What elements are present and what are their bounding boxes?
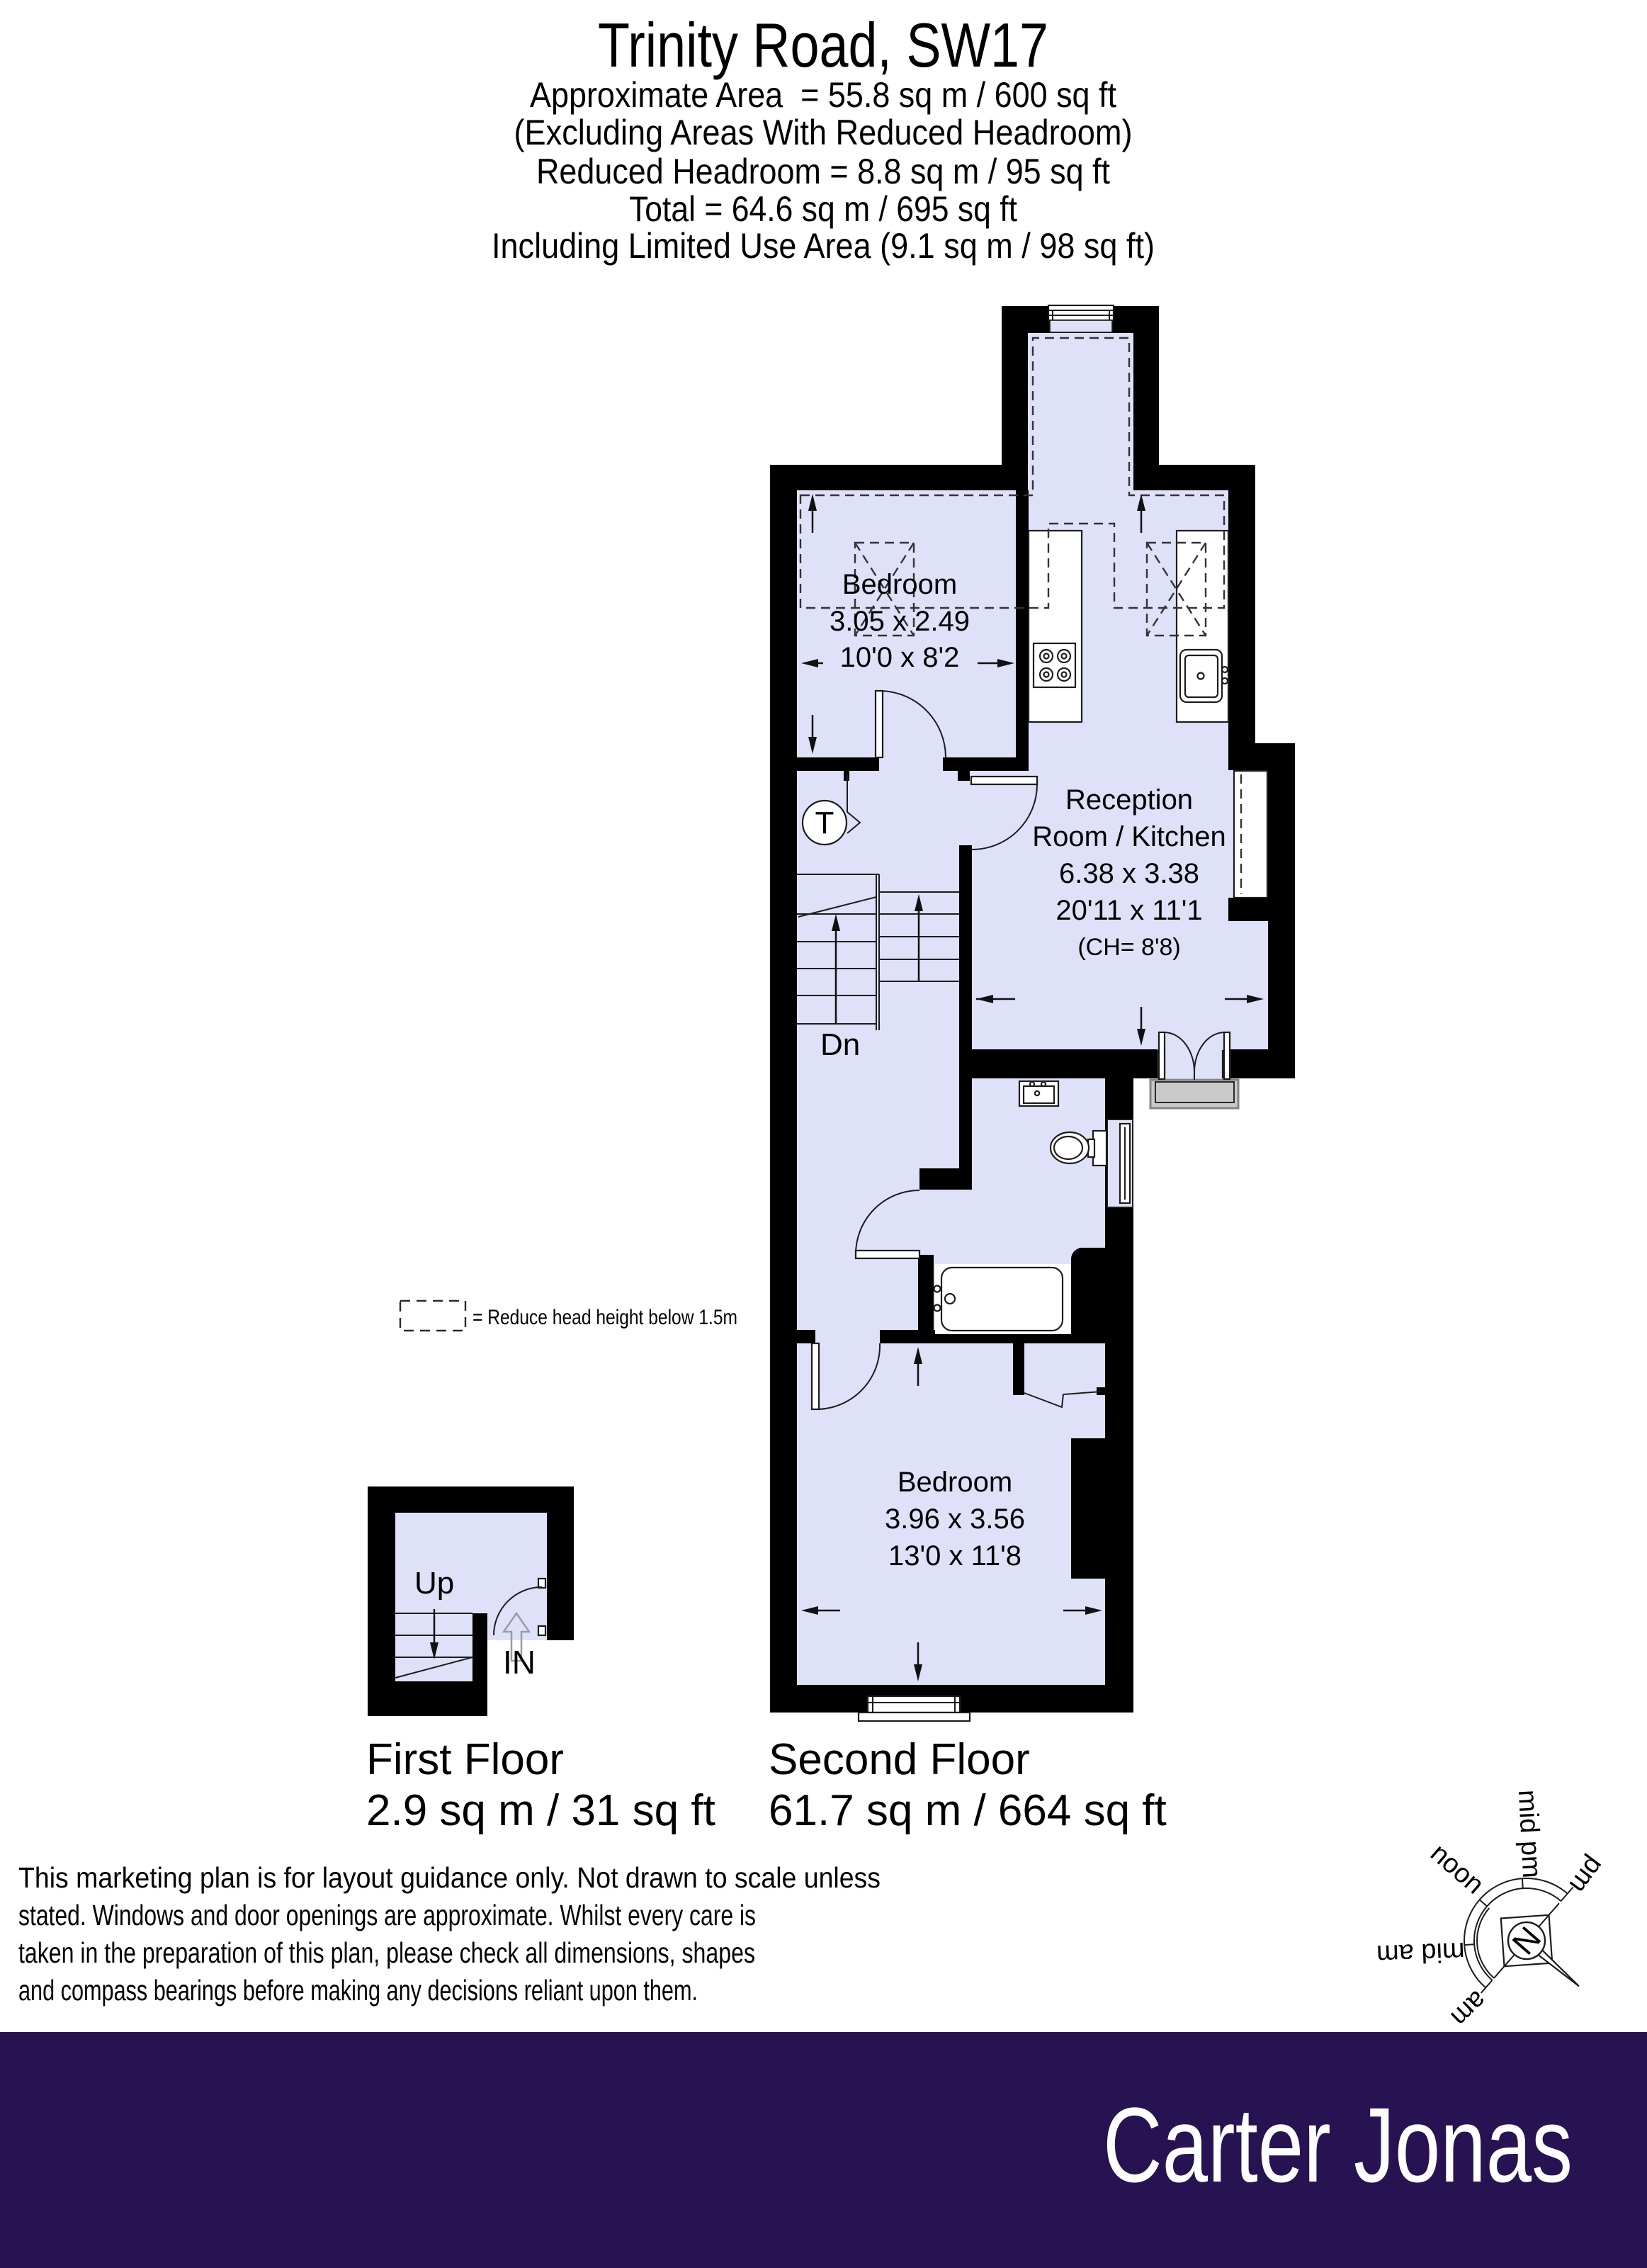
svg-text:(Excluding Areas With Reduced: (Excluding Areas With Reduced Headroom) (514, 113, 1133, 152)
svg-text:Second Floor: Second Floor (769, 1735, 1030, 1784)
svg-text:and compass bearings before ma: and compass bearings before making any d… (18, 1974, 698, 2007)
svg-text:Carter Jonas: Carter Jonas (1103, 2085, 1573, 2204)
svg-text:mid pm: mid pm (1512, 1789, 1546, 1879)
svg-text:Approximate Area = 55.8 sq m: Approximate Area = 55.8 sq m / 600 sq ft (530, 75, 1116, 115)
svg-text:Total = 64.6 sq m / 695 sq ft: Total = 64.6 sq m / 695 sq ft (629, 189, 1017, 229)
svg-text:3.96 x 3.56: 3.96 x 3.56 (885, 1503, 1025, 1535)
svg-text:Reduced Headroom = 8.8 sq m /: Reduced Headroom = 8.8 sq m / 95 sq ft (536, 152, 1110, 191)
svg-text:6.38 x 3.38: 6.38 x 3.38 (1059, 858, 1199, 889)
svg-text:20'11 x 11'1: 20'11 x 11'1 (1055, 895, 1202, 926)
svg-text:10'0 x 8'2: 10'0 x 8'2 (840, 642, 960, 673)
svg-text:(CH= 8'8): (CH= 8'8) (1077, 934, 1180, 961)
svg-text:taken in the preparation of th: taken in the preparation of this plan, p… (18, 1936, 755, 1969)
svg-text:Dn: Dn (820, 1027, 860, 1062)
svg-text:3.05 x 2.49: 3.05 x 2.49 (830, 606, 970, 637)
svg-text:2.9 sq m / 31 sq ft: 2.9 sq m / 31 sq ft (366, 1786, 715, 1835)
svg-text:= Reduce head height below 1.5: = Reduce head height below 1.5m (472, 1306, 737, 1329)
svg-text:mid am: mid am (1376, 1936, 1465, 1969)
svg-text:Including Limited Use Area (9.: Including Limited Use Area (9.1 sq m / 9… (492, 226, 1155, 266)
svg-text:Reception: Reception (1065, 784, 1193, 816)
svg-text:61.7 sq m / 664 sq ft: 61.7 sq m / 664 sq ft (769, 1786, 1167, 1835)
svg-text:This marketing plan is for lay: This marketing plan is for layout guidan… (18, 1861, 881, 1894)
svg-text:Bedroom: Bedroom (898, 1467, 1012, 1498)
svg-text:13'0 x 11'8: 13'0 x 11'8 (888, 1540, 1021, 1572)
svg-text:T: T (815, 806, 834, 840)
svg-text:Bedroom: Bedroom (842, 569, 957, 600)
svg-text:stated. Windows and door openi: stated. Windows and door openings are ap… (18, 1899, 756, 1931)
svg-text:First Floor: First Floor (366, 1735, 564, 1784)
svg-text:IN: IN (503, 1644, 536, 1681)
svg-text:Trinity Road, SW17: Trinity Road, SW17 (598, 10, 1048, 80)
svg-text:Up: Up (414, 1566, 454, 1601)
svg-text:Room / Kitchen: Room / Kitchen (1032, 821, 1226, 852)
